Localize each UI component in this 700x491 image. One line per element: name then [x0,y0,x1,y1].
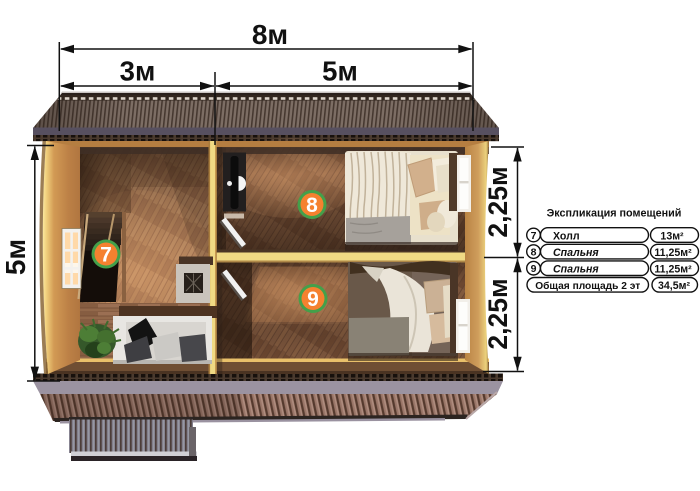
svg-text:3м: 3м [120,56,156,87]
svg-text:8: 8 [531,246,537,258]
svg-text:5м: 5м [0,239,31,275]
svg-text:2,25м: 2,25м [483,278,513,349]
svg-text:9: 9 [531,263,537,275]
svg-text:2,25м: 2,25м [483,166,513,237]
svg-text:7: 7 [100,244,112,267]
svg-text:9: 9 [307,288,319,311]
svg-text:34,5м²: 34,5м² [658,280,690,292]
svg-text:7: 7 [531,230,537,242]
svg-text:Холл: Холл [553,230,580,242]
svg-text:13м²: 13м² [660,230,684,242]
svg-text:8м: 8м [252,19,288,50]
svg-text:Спальня: Спальня [553,264,599,276]
svg-text:Спальня: Спальня [553,247,599,259]
svg-text:5м: 5м [322,56,358,87]
svg-text:Общая площадь 2 эт: Общая площадь 2 эт [535,280,640,292]
svg-text:11,25м²: 11,25м² [654,247,692,259]
svg-text:Экспликация помещений: Экспликация помещений [547,208,682,220]
svg-text:8: 8 [306,194,318,217]
svg-text:11,25м²: 11,25м² [654,264,692,276]
